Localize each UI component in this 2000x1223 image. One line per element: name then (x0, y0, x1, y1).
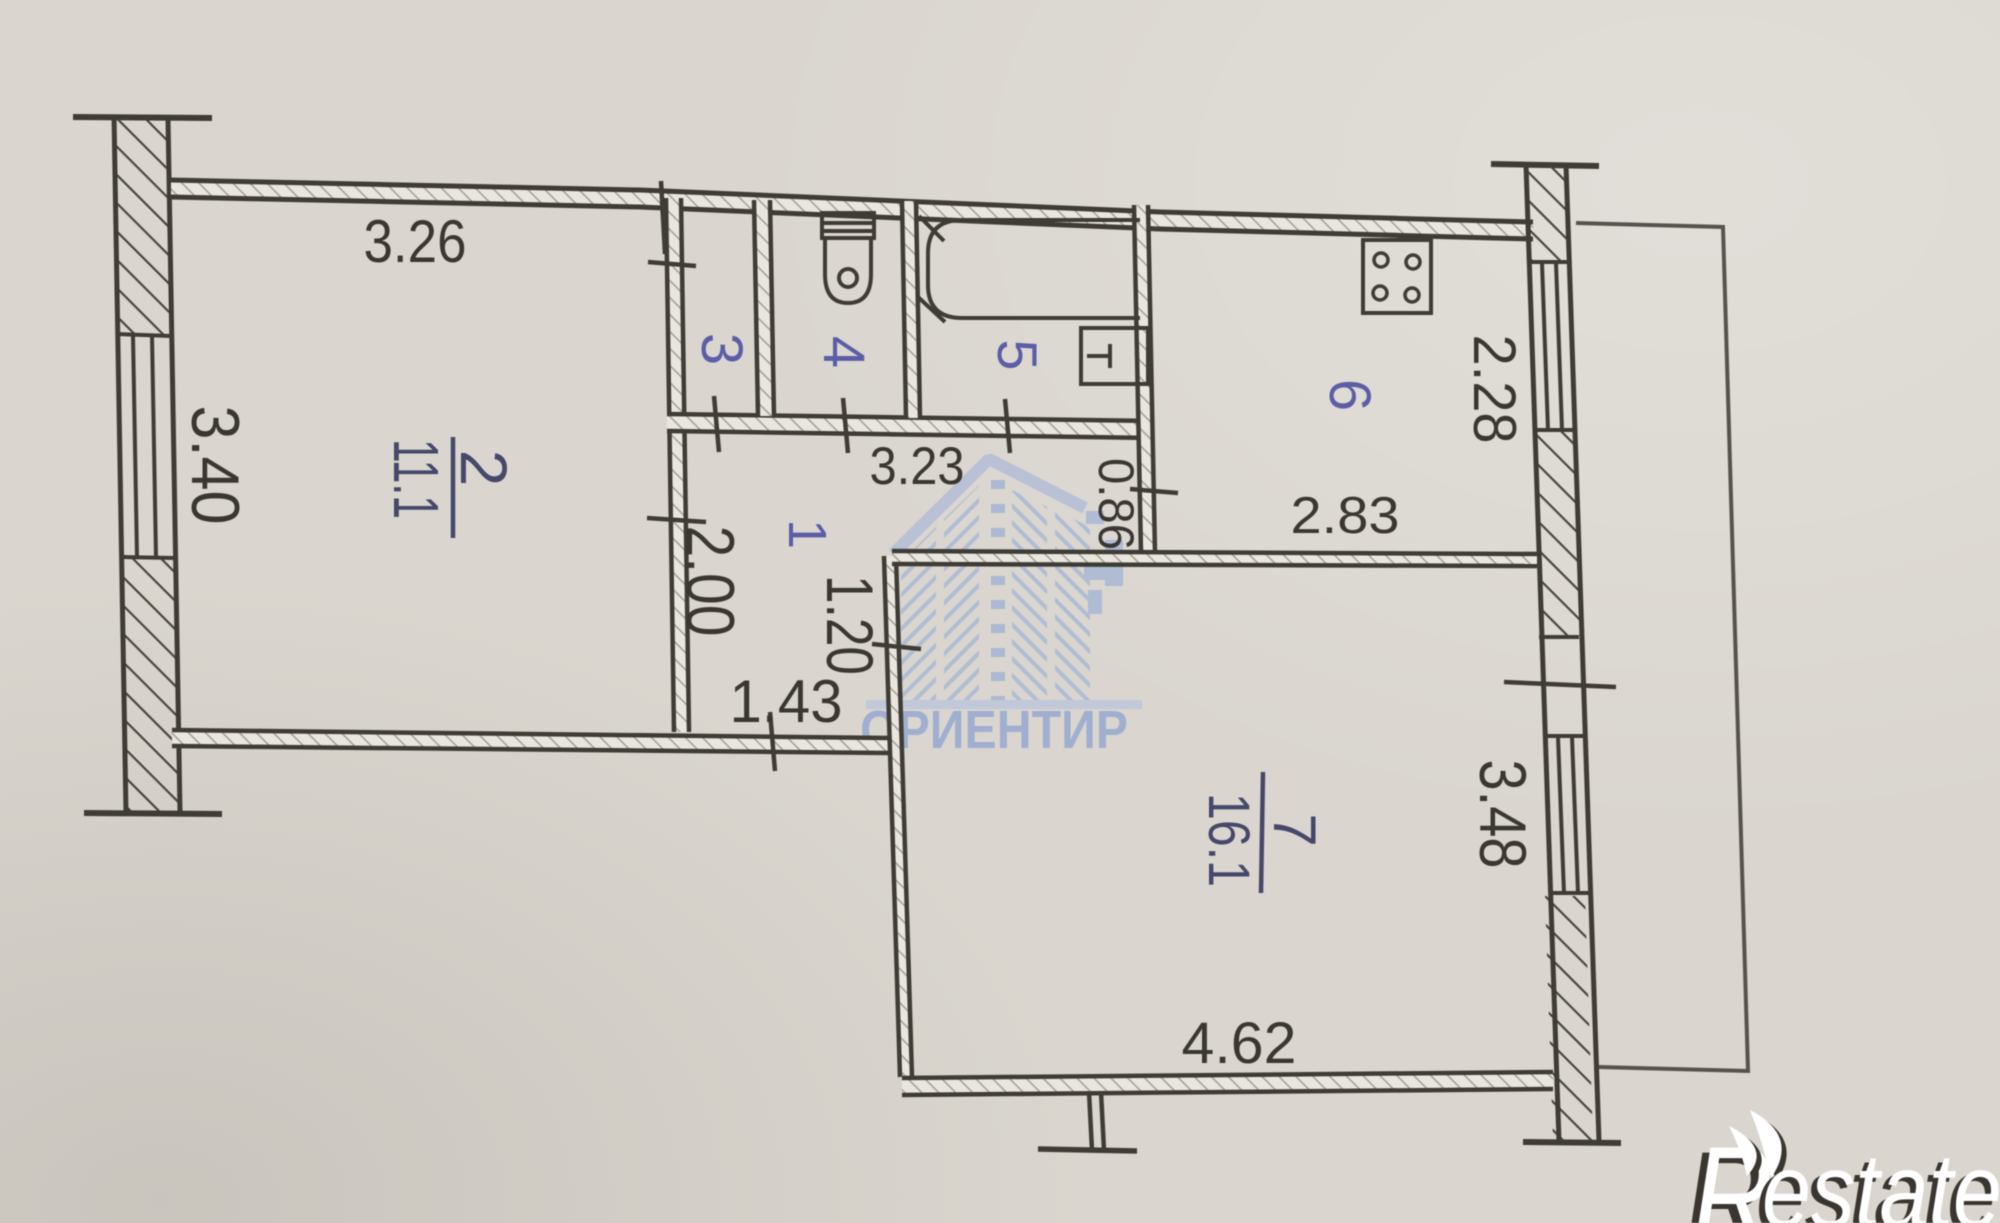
svg-text:3.23: 3.23 (870, 437, 965, 496)
svg-text:2.00: 2.00 (672, 526, 748, 637)
svg-text:6: 6 (1317, 379, 1382, 411)
svg-text:16.1: 16.1 (1196, 793, 1261, 887)
svg-text:2.28: 2.28 (1461, 335, 1528, 444)
svg-text:0.86: 0.86 (1088, 458, 1144, 550)
svg-text:7: 7 (1261, 813, 1328, 846)
svg-text:11.1: 11.1 (380, 439, 452, 519)
svg-text:2.83: 2.83 (1291, 487, 1400, 545)
svg-text:4: 4 (811, 336, 876, 368)
svg-text:estate: estate (1762, 1132, 2000, 1223)
svg-text:1.20: 1.20 (813, 575, 887, 675)
svg-text:4.62: 4.62 (1182, 1011, 1297, 1076)
svg-text:3.40: 3.40 (177, 406, 253, 525)
svg-text:5: 5 (986, 339, 1049, 370)
svg-text:3.48: 3.48 (1466, 760, 1540, 869)
svg-text:2: 2 (447, 450, 521, 487)
svg-text:1.43: 1.43 (730, 668, 843, 735)
svg-text:3.26: 3.26 (364, 208, 467, 275)
svg-text:1: 1 (777, 519, 837, 549)
svg-text:3: 3 (689, 333, 754, 365)
